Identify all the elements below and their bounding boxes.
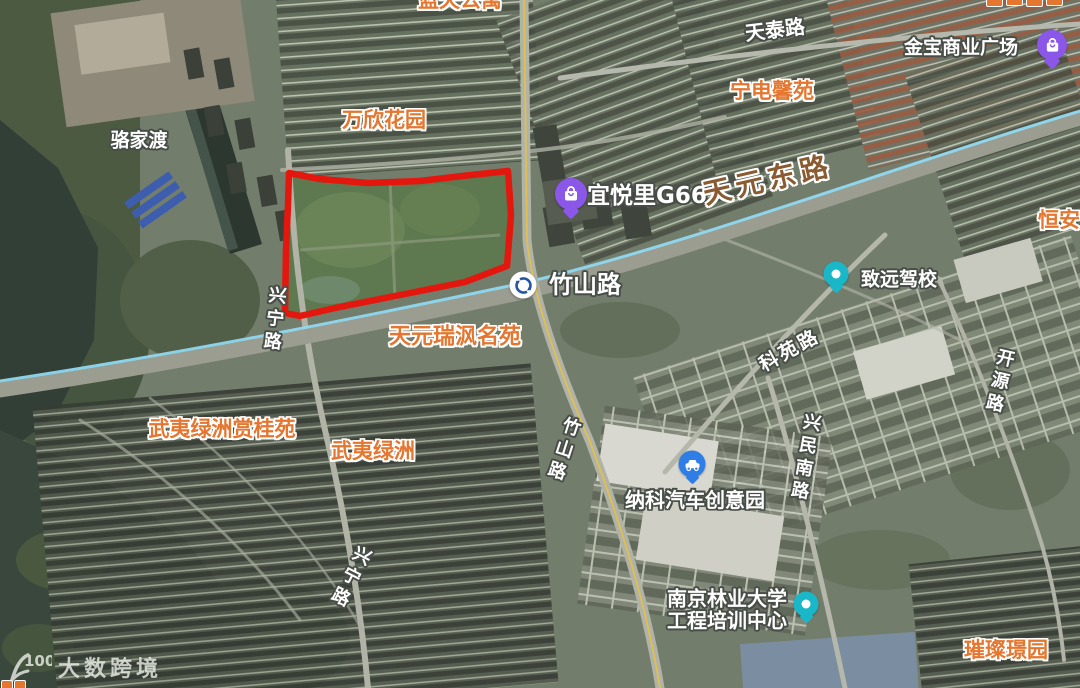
label-nake-park[interactable]: 纳科汽车创意园 (625, 489, 765, 511)
watermark-text: 大数跨境 (58, 651, 162, 683)
label-zhiyuan-jiaxiao[interactable]: 致远驾校 (861, 269, 937, 290)
metro-logo-icon (513, 275, 533, 295)
label-wanxin-huayuan[interactable]: 万欣花园 (342, 109, 426, 133)
pin-jinbao-mall[interactable] (1037, 30, 1067, 60)
shopping-bag-icon (1044, 37, 1061, 54)
satellite-map-canvas[interactable]: 蓝天公寓 万欣花园 宁电馨苑 恒安 天元瑞沨名苑 武夷绿洲赏桂苑 武夷绿洲 璀璨… (0, 0, 1080, 688)
watermark-logo-icon: 100 (8, 650, 52, 684)
label-nanlin-center[interactable]: 南京林业大学 工程培训中心 (667, 588, 787, 633)
label-wuyi-shangguiyuan[interactable]: 武夷绿洲赏桂苑 (149, 418, 296, 442)
satellite-basemap (0, 0, 1080, 688)
label-wuyi-lvzhou[interactable]: 武夷绿洲 (331, 440, 415, 464)
label-yiyueli-g66[interactable]: 宜悦里G66 (587, 184, 707, 210)
label-lantian-gongyu[interactable]: 蓝天公寓 (418, 0, 502, 13)
label-cuican-jingyuan[interactable]: 璀璨璟园 (964, 639, 1048, 663)
label-zhushanlu-station[interactable]: 竹山路 (549, 272, 621, 299)
label-luojiadu[interactable]: 骆家渡 (110, 130, 167, 151)
watermark-logo-100: 100 (24, 652, 52, 670)
metro-station-icon[interactable] (510, 272, 537, 299)
pin-nake-auto-park[interactable] (679, 451, 706, 478)
shopping-bag-icon (562, 185, 580, 203)
watermark: 100 大数跨境 (8, 650, 162, 684)
pin-nanlin-training-center[interactable] (794, 592, 819, 617)
label-nanlin-line2: 工程培训中心 (667, 610, 787, 632)
label-tianyuan-ruifeng[interactable]: 天元瑞沨名苑 (389, 326, 521, 351)
label-hengan[interactable]: 恒安 (1038, 209, 1080, 233)
label-ningdian-xinyuan[interactable]: 宁电馨苑 (730, 80, 814, 104)
pin-zhiyuan-driving-school[interactable] (824, 262, 849, 287)
pin-yiyueli-mall[interactable] (555, 178, 587, 210)
label-jinbao-plaza[interactable]: 金宝商业广场 (904, 37, 1018, 58)
label-nanlin-line1: 南京林业大学 (667, 588, 787, 610)
